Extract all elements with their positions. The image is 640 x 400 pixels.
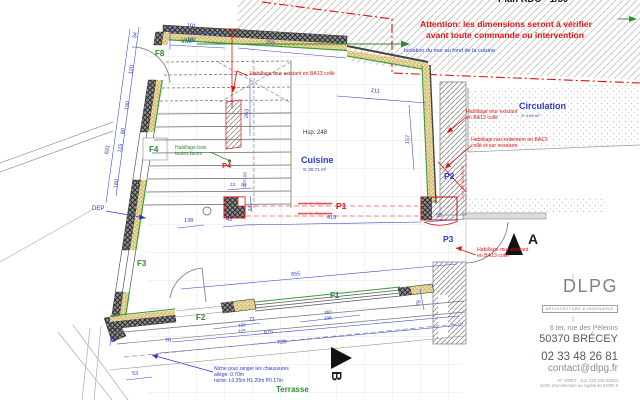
dim-label: 34: [133, 32, 140, 39]
room-area-circulation: S: 4.58 m²: [521, 114, 539, 118]
dim-label: 655: [291, 272, 301, 279]
dim-label: 95: [436, 214, 442, 220]
dim-label: 138: [184, 219, 193, 225]
dim-label: 23: [230, 183, 235, 188]
joint-label-p1: P1: [336, 202, 346, 211]
joint-text-1: Joint de dilatation: [298, 202, 332, 207]
dim-label: 44: [248, 206, 253, 211]
dim-label: 71: [249, 317, 256, 323]
dim-label: 336: [324, 316, 332, 321]
warning-line-2: avant toute commande ou intervention: [426, 31, 584, 40]
note-habillage-bois-2: toutes faces: [175, 152, 202, 157]
window-label-f4: F4: [149, 146, 158, 154]
dim-label: 80: [121, 128, 128, 135]
dim-label: 157: [406, 135, 412, 145]
dim-label: 107: [187, 38, 196, 44]
joint-label-p2: P2: [444, 172, 454, 181]
plan-title: Plan RDC - 1/50: [498, 0, 568, 5]
dim-label: 225: [238, 329, 246, 334]
company-logo: DLPG: [478, 276, 618, 297]
phone-number: 02 33 48 26 81: [478, 351, 618, 363]
joint-label-p3: P3: [443, 235, 453, 244]
floor-plan-sheet: Plan RDC - 1/50 Attention: les dimension…: [0, 0, 640, 400]
room-area-cuisine: S: 26.71 m²: [303, 168, 326, 173]
window-label-f1: F1: [330, 292, 339, 300]
dim-label: 117/100: [243, 172, 248, 188]
note-raccord-2: collé et sur ossature: [471, 144, 517, 149]
address-line-1: 6 ter, rue des Pèlerins: [478, 325, 618, 332]
tile-grid: [148, 36, 462, 398]
room-label-terrasse: Terrasse: [276, 386, 309, 394]
post-label-p4: P4: [222, 162, 231, 170]
dim-label: 43: [226, 218, 232, 224]
window-label-f8: F8: [155, 50, 164, 58]
note-niche-3: niche: L0.35m H1.20m P0.17m: [214, 379, 283, 384]
address-line-2: 50370 BRÉCEY: [478, 333, 618, 345]
company-logo-subtitle: ARCHITECTURE & INGÉNIERIE: [542, 305, 618, 313]
window-label-f3: F3: [137, 260, 146, 268]
dim-label: 101: [187, 24, 196, 30]
company-legal: SARL d'architecture au capital de 24000 …: [478, 383, 618, 388]
note-habillage-right-2: en BA13 collé: [466, 116, 498, 121]
dim-label: 70: [165, 338, 172, 344]
door-label-f2: F2: [196, 314, 205, 322]
dep-label: DEP: [92, 206, 104, 212]
room-label-circulation: Circulation: [519, 102, 566, 111]
room-label-cuisine: Cuisine: [301, 156, 334, 165]
title-block: DLPG ARCHITECTURE & INGÉNIERIE 6 ter, ru…: [478, 276, 618, 388]
dim-label: 728: [277, 340, 287, 347]
note-habillage-top: Habillage mur existant en BA13 collé: [250, 72, 335, 77]
note-habillage-low-2: en BA13 collé: [477, 254, 509, 259]
dim-label: 675: [264, 330, 274, 337]
email-address: contact@dlpg.fr: [478, 363, 618, 374]
warning-line-1: Attention: les dimensions seront à vérif…: [420, 20, 592, 29]
section-letter-a: A: [528, 232, 538, 247]
dim-label: 211: [371, 89, 380, 95]
joint-text-vertical: Joint de dilatation: [461, 166, 466, 200]
isolation-note: Isolation du mur au fond de la cuisine: [404, 49, 495, 55]
section-letter-b: B: [329, 371, 344, 381]
dim-label: 59: [112, 336, 118, 343]
dim-label: 255: [266, 41, 276, 47]
dim-label: 419: [327, 216, 336, 222]
dim-label: 263: [245, 109, 251, 118]
dim-label: 78: [417, 300, 423, 307]
ceiling-height-label: Hsp: 248: [303, 130, 327, 136]
dim-label: 53: [132, 372, 138, 378]
